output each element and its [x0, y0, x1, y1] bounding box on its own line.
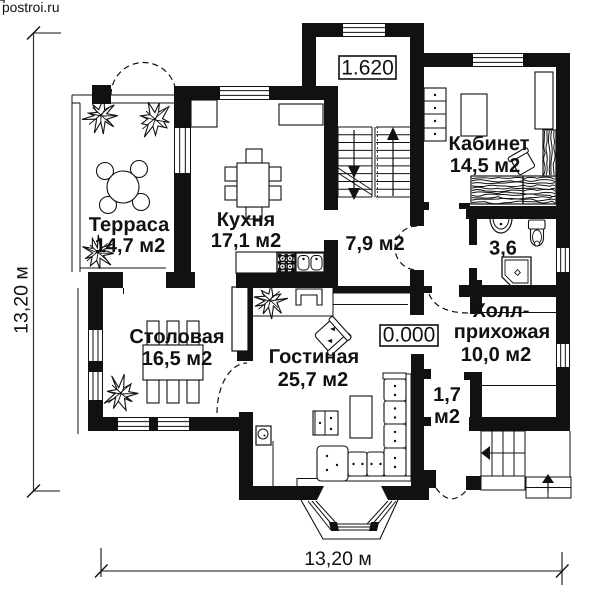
svg-text:1,7: 1,7: [433, 384, 461, 406]
svg-text:Терраса: Терраса: [89, 214, 170, 236]
svg-text:14,5 м2: 14,5 м2: [450, 155, 520, 177]
svg-text:25,7 м2: 25,7 м2: [278, 369, 348, 391]
svg-text:Кабинет: Кабинет: [449, 133, 530, 155]
svg-text:Столовая: Столовая: [129, 326, 224, 348]
svg-text:10,0 м2: 10,0 м2: [461, 344, 531, 366]
svg-text:прихожая: прихожая: [454, 321, 550, 343]
svg-text:Холл-: Холл-: [473, 300, 530, 322]
svg-text:17,1 м2: 17,1 м2: [211, 230, 281, 252]
svg-text:Кухня: Кухня: [217, 209, 275, 231]
svg-text:3,6: 3,6: [489, 238, 517, 260]
svg-text:7,9 м2: 7,9 м2: [345, 233, 404, 255]
svg-text:Гостиная: Гостиная: [269, 346, 359, 368]
svg-text:13,20 м: 13,20 м: [304, 548, 372, 570]
svg-text:postroi.ru: postroi.ru: [2, 0, 60, 15]
svg-text:14,7 м2: 14,7 м2: [95, 235, 165, 257]
svg-text:0.000: 0.000: [383, 324, 436, 347]
svg-text:16,5 м2: 16,5 м2: [142, 348, 212, 370]
svg-text:м2: м2: [434, 406, 460, 428]
svg-text:13,20 м: 13,20 м: [11, 266, 33, 334]
svg-text:1.620: 1.620: [341, 57, 394, 80]
